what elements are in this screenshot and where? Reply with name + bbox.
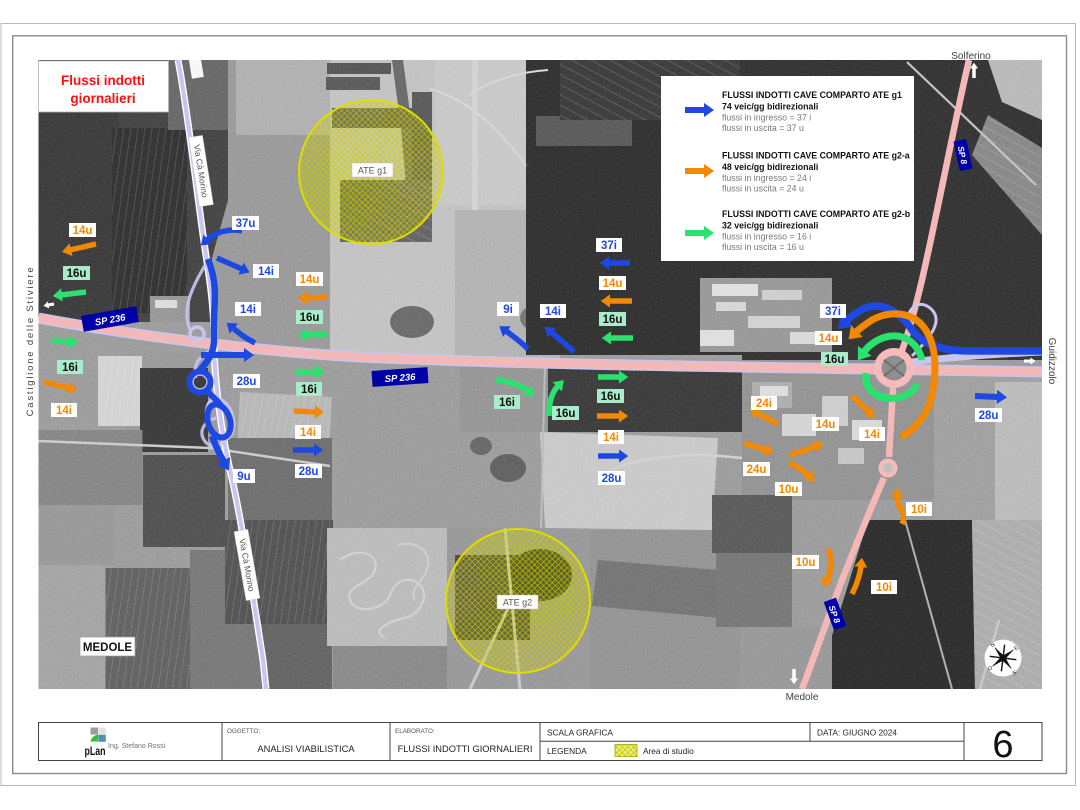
svg-text:Flussi indotti: Flussi indotti: [61, 73, 145, 88]
svg-text:flussi in uscita = 37 u: flussi in uscita = 37 u: [722, 123, 804, 133]
svg-text:14u: 14u: [300, 274, 320, 286]
svg-text:10i: 10i: [911, 504, 927, 516]
svg-text:28u: 28u: [299, 466, 319, 478]
svg-text:9i: 9i: [503, 304, 513, 316]
svg-text:ATE g2: ATE g2: [503, 598, 532, 608]
svg-text:48 veic/gg bidirezionali: 48 veic/gg bidirezionali: [722, 162, 818, 172]
svg-text:16u: 16u: [601, 391, 621, 403]
svg-text:37i: 37i: [825, 306, 841, 318]
svg-text:24i: 24i: [756, 398, 772, 410]
svg-text:16u: 16u: [556, 408, 576, 420]
svg-text:16u: 16u: [825, 354, 845, 366]
svg-text:flussi in uscita = 16 u: flussi in uscita = 16 u: [722, 242, 804, 252]
svg-text:14i: 14i: [240, 304, 256, 316]
svg-text:14i: 14i: [545, 306, 561, 318]
svg-text:9u: 9u: [237, 471, 250, 483]
svg-text:16u: 16u: [603, 314, 623, 326]
svg-text:flussi in ingresso = 24 i: flussi in ingresso = 24 i: [722, 173, 811, 183]
svg-text:14u: 14u: [603, 278, 623, 290]
svg-text:37u: 37u: [236, 218, 256, 230]
svg-text:10u: 10u: [796, 557, 816, 569]
svg-text:10u: 10u: [779, 484, 799, 496]
svg-text:16i: 16i: [301, 384, 317, 396]
svg-text:28u: 28u: [979, 410, 999, 422]
svg-text:14i: 14i: [300, 427, 316, 439]
svg-text:giornalieri: giornalieri: [70, 91, 135, 106]
svg-text:SCALA GRAFICA: SCALA GRAFICA: [547, 728, 613, 738]
svg-text:Guidizzolo: Guidizzolo: [1046, 338, 1057, 385]
svg-text:14u: 14u: [819, 333, 839, 345]
svg-text:Area di studio: Area di studio: [643, 746, 694, 756]
svg-text:LEGENDA: LEGENDA: [547, 746, 587, 756]
svg-text:Ing. Stefano Rossi: Ing. Stefano Rossi: [108, 743, 166, 750]
svg-text:74 veic/gg bidirezionali: 74 veic/gg bidirezionali: [722, 102, 818, 112]
svg-text:FLUSSI INDOTTI CAVE COMPARTO A: FLUSSI INDOTTI CAVE COMPARTO ATE g2-b: [722, 209, 911, 219]
svg-text:OGGETTO:: OGGETTO:: [227, 728, 260, 735]
svg-text:DATA: GIUGNO 2024: DATA: GIUGNO 2024: [817, 728, 897, 738]
svg-text:28u: 28u: [602, 473, 622, 485]
svg-text:14i: 14i: [603, 432, 619, 444]
svg-text:FLUSSI INDOTTI CAVE COMPARTO A: FLUSSI INDOTTI CAVE COMPARTO ATE g2-a: [722, 151, 910, 161]
svg-text:14i: 14i: [56, 405, 72, 417]
svg-text:Solferino: Solferino: [951, 51, 991, 62]
svg-text:14u: 14u: [816, 419, 836, 431]
svg-text:6: 6: [992, 724, 1013, 766]
svg-text:FLUSSI INDOTTI CAVE COMPARTO A: FLUSSI INDOTTI CAVE COMPARTO ATE g1: [722, 90, 902, 100]
svg-text:16u: 16u: [67, 268, 87, 280]
svg-text:28u: 28u: [237, 376, 257, 388]
svg-text:Medole: Medole: [786, 692, 819, 703]
svg-text:Castiglione delle Stiviere: Castiglione delle Stiviere: [25, 266, 36, 417]
svg-text:37i: 37i: [601, 240, 617, 252]
svg-text:14u: 14u: [73, 225, 93, 237]
svg-text:MEDOLE: MEDOLE: [83, 642, 133, 654]
svg-text:flussi in ingresso = 16 i: flussi in ingresso = 16 i: [722, 232, 811, 242]
svg-text:ATE g1: ATE g1: [358, 166, 387, 176]
svg-text:ANALISI VIABILISTICA: ANALISI VIABILISTICA: [257, 744, 355, 754]
svg-text:16i: 16i: [499, 397, 515, 409]
svg-text:FLUSSI INDOTTI GIORNALIERI: FLUSSI INDOTTI GIORNALIERI: [398, 744, 533, 754]
svg-text:flussi in ingresso = 37 i: flussi in ingresso = 37 i: [722, 113, 811, 123]
svg-text:ELABORATO:: ELABORATO:: [395, 728, 435, 735]
svg-text:24u: 24u: [747, 464, 767, 476]
svg-text:32 veic/gg bidirezionali: 32 veic/gg bidirezionali: [722, 221, 818, 231]
svg-text:14i: 14i: [258, 266, 274, 278]
svg-text:16i: 16i: [62, 362, 78, 374]
svg-text:10i: 10i: [876, 582, 892, 594]
svg-text:flussi in uscita = 24 u: flussi in uscita = 24 u: [722, 184, 804, 194]
svg-text:16u: 16u: [300, 312, 320, 324]
svg-text:SP 236: SP 236: [384, 372, 416, 385]
svg-text:pLan: pLan: [85, 744, 106, 758]
svg-text:14i: 14i: [864, 429, 880, 441]
